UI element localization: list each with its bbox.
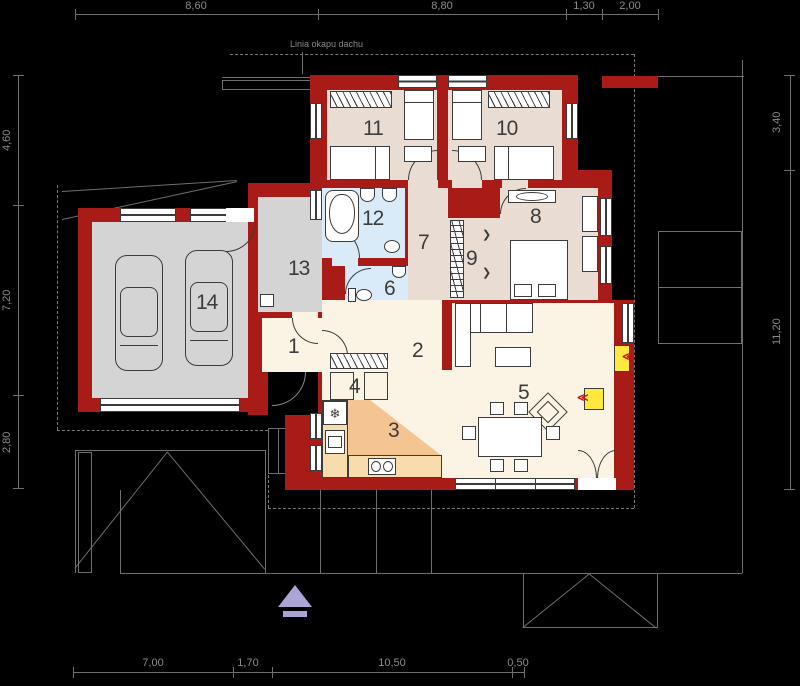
door-gap-room10 bbox=[452, 180, 482, 188]
pillow-room8-2 bbox=[538, 284, 556, 297]
dim-label-left-2: 7,20 bbox=[2, 270, 13, 330]
driveway-left-edge bbox=[75, 450, 76, 573]
car-2-line bbox=[190, 340, 228, 341]
dim-tick bbox=[13, 488, 24, 489]
sink-bowl-1 bbox=[371, 461, 381, 472]
hanger-rail-icon-2: ❯ bbox=[482, 268, 491, 279]
garage-roof-overhang bbox=[222, 80, 318, 90]
window-kitchen-west-1 bbox=[310, 413, 322, 439]
dim-tick bbox=[272, 667, 273, 678]
dim-line-bottom bbox=[73, 672, 524, 673]
dim-label-top-3: 1,30 bbox=[562, 1, 606, 12]
dim-line-left bbox=[18, 75, 19, 488]
dining-table bbox=[478, 417, 542, 457]
eave-label-leader bbox=[302, 52, 303, 74]
terrace-joint-3 bbox=[376, 490, 377, 573]
dim-label-bottom-2: 1,70 bbox=[226, 658, 270, 669]
bed-room11-vertical bbox=[404, 90, 434, 140]
dim-label-right-1: 3,40 bbox=[772, 92, 783, 152]
fireplace-heat-icon-1: ≪ bbox=[622, 352, 634, 363]
bed-room11-pillow-line bbox=[404, 102, 434, 103]
wardrobe-room11 bbox=[330, 91, 392, 108]
dining-chair-6 bbox=[546, 426, 560, 440]
bed-room11 bbox=[330, 146, 390, 180]
dim-label-left-1: 4,60 bbox=[2, 110, 13, 170]
sink-bowl-2 bbox=[383, 461, 393, 472]
floor-plan-canvas: 8,60 8,80 1,30 2,00 4,60 7,20 2,80 3,40 … bbox=[0, 0, 800, 686]
fridge: ❄ bbox=[323, 401, 347, 425]
window-room10-east bbox=[566, 103, 578, 139]
dim-tick bbox=[75, 9, 76, 20]
dim-label-bottom-3: 10,50 bbox=[362, 658, 422, 669]
wardrobe-room8-2 bbox=[582, 236, 598, 272]
room-6-label: 6 bbox=[384, 278, 395, 299]
window-kitchen-west-2 bbox=[310, 445, 322, 471]
room-5-label: 5 bbox=[518, 382, 529, 403]
room-2-label: 2 bbox=[412, 340, 423, 361]
dim-label-top-4: 2,00 bbox=[608, 1, 652, 12]
garage-gate bbox=[100, 398, 240, 412]
door-gap-terrace bbox=[578, 478, 616, 490]
dim-tick bbox=[658, 9, 659, 20]
pergola-wall bbox=[602, 76, 658, 88]
wardrobe-room8-1 bbox=[582, 196, 598, 232]
door-gap-bathroom bbox=[332, 258, 358, 266]
open-passage-patch bbox=[442, 370, 452, 478]
window-room8-east-1 bbox=[600, 198, 612, 236]
driveway-slope-line-1 bbox=[167, 452, 265, 570]
window-north-2 bbox=[448, 75, 487, 88]
eave-line-label: Linia okapu dachu bbox=[290, 40, 386, 49]
window-north-1 bbox=[398, 75, 437, 88]
room-3-label: 3 bbox=[388, 420, 399, 441]
car-1-line bbox=[120, 345, 158, 346]
wardrobe-room10 bbox=[488, 91, 550, 108]
bed-room10-vertical bbox=[452, 90, 482, 140]
car-1-cabin bbox=[120, 287, 158, 337]
sofa-arm bbox=[455, 303, 471, 367]
terrace-joint-1 bbox=[120, 490, 121, 573]
driveway-right-edge bbox=[265, 450, 266, 573]
pillow-room8-1 bbox=[514, 284, 532, 297]
pergola-line-top bbox=[658, 76, 744, 77]
desk-room10 bbox=[458, 146, 486, 162]
fireplace-heat-icon-2: ≪ bbox=[577, 393, 589, 404]
window-room11-west bbox=[310, 103, 322, 139]
bed-room10-pillow-line bbox=[452, 102, 482, 103]
bed-room10 bbox=[494, 146, 554, 180]
dining-chair-4 bbox=[514, 459, 528, 472]
roof-eave-line-garage-west bbox=[57, 185, 58, 430]
side-terrace-step-divider bbox=[658, 287, 742, 288]
dim-label-top-1: 8,60 bbox=[166, 1, 226, 12]
door-gap-room11 bbox=[408, 180, 438, 188]
roof-eave-line-top bbox=[230, 54, 634, 55]
window-living-east bbox=[622, 303, 634, 343]
dim-label-right-2: 11,20 bbox=[772, 300, 783, 364]
coffee-table bbox=[495, 347, 531, 367]
room-14-label: 14 bbox=[196, 292, 217, 313]
desk-room11 bbox=[404, 146, 432, 162]
porch-step-line-1 bbox=[278, 428, 279, 474]
wardrobe-room4 bbox=[330, 353, 388, 369]
dim-line-top bbox=[75, 14, 658, 15]
garage-roof-line bbox=[222, 77, 318, 78]
shed-roof-outline bbox=[523, 573, 658, 628]
dim-tick bbox=[784, 170, 795, 171]
window-room8-east-2 bbox=[600, 246, 612, 284]
terrace-joint-2 bbox=[320, 490, 321, 573]
room-11-label: 11 bbox=[363, 118, 383, 139]
room-4-label: 4 bbox=[349, 376, 360, 397]
boiler bbox=[260, 294, 274, 307]
room-9-label: 9 bbox=[466, 248, 477, 269]
hedge-strip bbox=[78, 452, 92, 573]
dim-tick bbox=[13, 75, 24, 76]
sofa-cushion-line-1 bbox=[480, 303, 481, 333]
terrace-joint-4 bbox=[431, 490, 432, 573]
toilet-bowl bbox=[356, 289, 372, 301]
dim-tick bbox=[784, 489, 795, 490]
bathtub-basin bbox=[329, 194, 355, 234]
site-boundary-right bbox=[742, 60, 743, 573]
dim-label-bottom-1: 7,00 bbox=[123, 658, 183, 669]
dim-tick bbox=[318, 9, 319, 20]
dim-label-left-3: 2,80 bbox=[2, 412, 13, 472]
window-garage-north-1 bbox=[120, 208, 176, 222]
bed-room11-line bbox=[375, 146, 376, 180]
room-7-label: 7 bbox=[418, 232, 429, 253]
window-living-south bbox=[455, 478, 575, 490]
sink-bath-1 bbox=[360, 188, 375, 202]
dresser-mirror bbox=[516, 192, 548, 201]
oven-door bbox=[328, 436, 342, 448]
room-10-label: 10 bbox=[496, 118, 517, 139]
room-1-label: 1 bbox=[288, 336, 299, 357]
room-13-label: 13 bbox=[288, 258, 309, 279]
room-8-label: 8 bbox=[530, 206, 541, 227]
driveway-top-edge bbox=[75, 450, 265, 451]
bed-room10-line bbox=[508, 146, 509, 180]
dim-label-bottom-4: 0,50 bbox=[496, 658, 540, 669]
dining-chair-1 bbox=[490, 402, 504, 415]
dining-chair-5 bbox=[462, 426, 476, 440]
dim-tick bbox=[73, 667, 74, 678]
north-arrow-icon bbox=[278, 585, 312, 607]
hanger-rail-icon-1: ❯ bbox=[482, 230, 491, 241]
window-bath-west bbox=[310, 190, 322, 220]
toilet-tank bbox=[348, 288, 356, 302]
door-gap-garage-back bbox=[226, 208, 254, 222]
sink-bath-3 bbox=[384, 240, 400, 253]
roof-eave-line-right bbox=[634, 54, 635, 508]
roof-eave-line-bottom bbox=[268, 508, 634, 509]
room-12-label: 12 bbox=[362, 208, 383, 229]
dim-tick bbox=[13, 205, 24, 206]
sink-bath-2 bbox=[382, 188, 397, 202]
dining-chair-3 bbox=[490, 459, 504, 472]
dim-label-top-2: 8,80 bbox=[412, 1, 472, 12]
dim-tick bbox=[784, 75, 795, 76]
roof-eave-line-garage-south bbox=[57, 430, 268, 431]
window-mullion-2 bbox=[535, 478, 536, 490]
north-arrow-base bbox=[283, 611, 307, 617]
cabinet-room4-2 bbox=[364, 372, 388, 400]
window-mullion-1 bbox=[495, 478, 496, 490]
wardrobe-shelves-room9 bbox=[450, 220, 464, 298]
dim-tick bbox=[13, 395, 24, 396]
sofa-cushion-line-2 bbox=[506, 303, 507, 333]
dim-line-right bbox=[790, 75, 791, 490]
